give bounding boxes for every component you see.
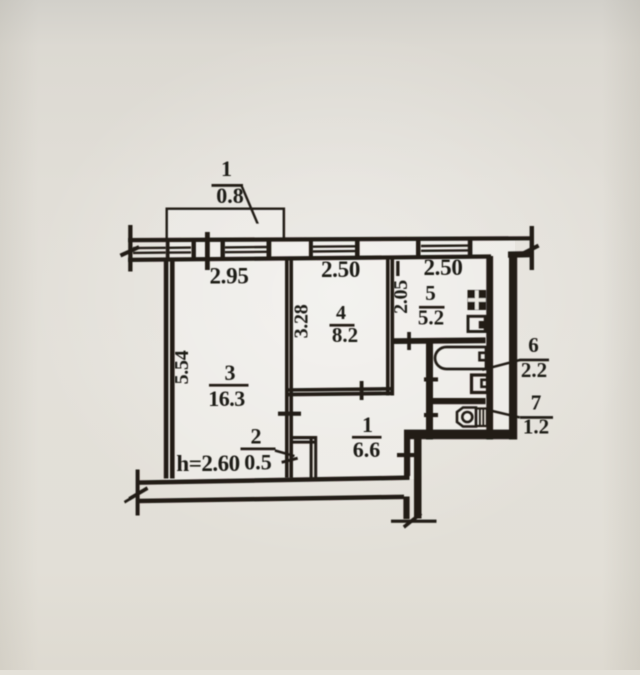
svg-text:h=2.60: h=2.60: [176, 451, 239, 476]
svg-text:5: 5: [425, 281, 436, 305]
svg-text:5.2: 5.2: [418, 306, 444, 330]
svg-text:4: 4: [336, 302, 346, 324]
svg-text:2.2: 2.2: [521, 358, 547, 382]
svg-text:6: 6: [528, 333, 539, 357]
svg-text:2.95: 2.95: [209, 264, 248, 289]
svg-text:1.2: 1.2: [523, 415, 549, 439]
svg-text:7: 7: [531, 391, 542, 415]
svg-text:0.8: 0.8: [216, 183, 244, 208]
svg-text:5.54: 5.54: [171, 350, 193, 384]
svg-text:1: 1: [221, 156, 232, 181]
svg-text:0.5: 0.5: [244, 450, 272, 475]
svg-text:16.3: 16.3: [208, 386, 245, 411]
svg-text:3.28: 3.28: [291, 304, 313, 338]
svg-text:2: 2: [251, 424, 262, 449]
svg-text:2.05: 2.05: [390, 280, 412, 314]
svg-text:6.6: 6.6: [353, 437, 381, 462]
svg-text:2.50: 2.50: [423, 255, 462, 280]
svg-text:3: 3: [225, 360, 236, 385]
svg-text:8.2: 8.2: [332, 323, 358, 347]
svg-text:2.50: 2.50: [321, 257, 360, 282]
svg-text:1: 1: [362, 412, 373, 437]
